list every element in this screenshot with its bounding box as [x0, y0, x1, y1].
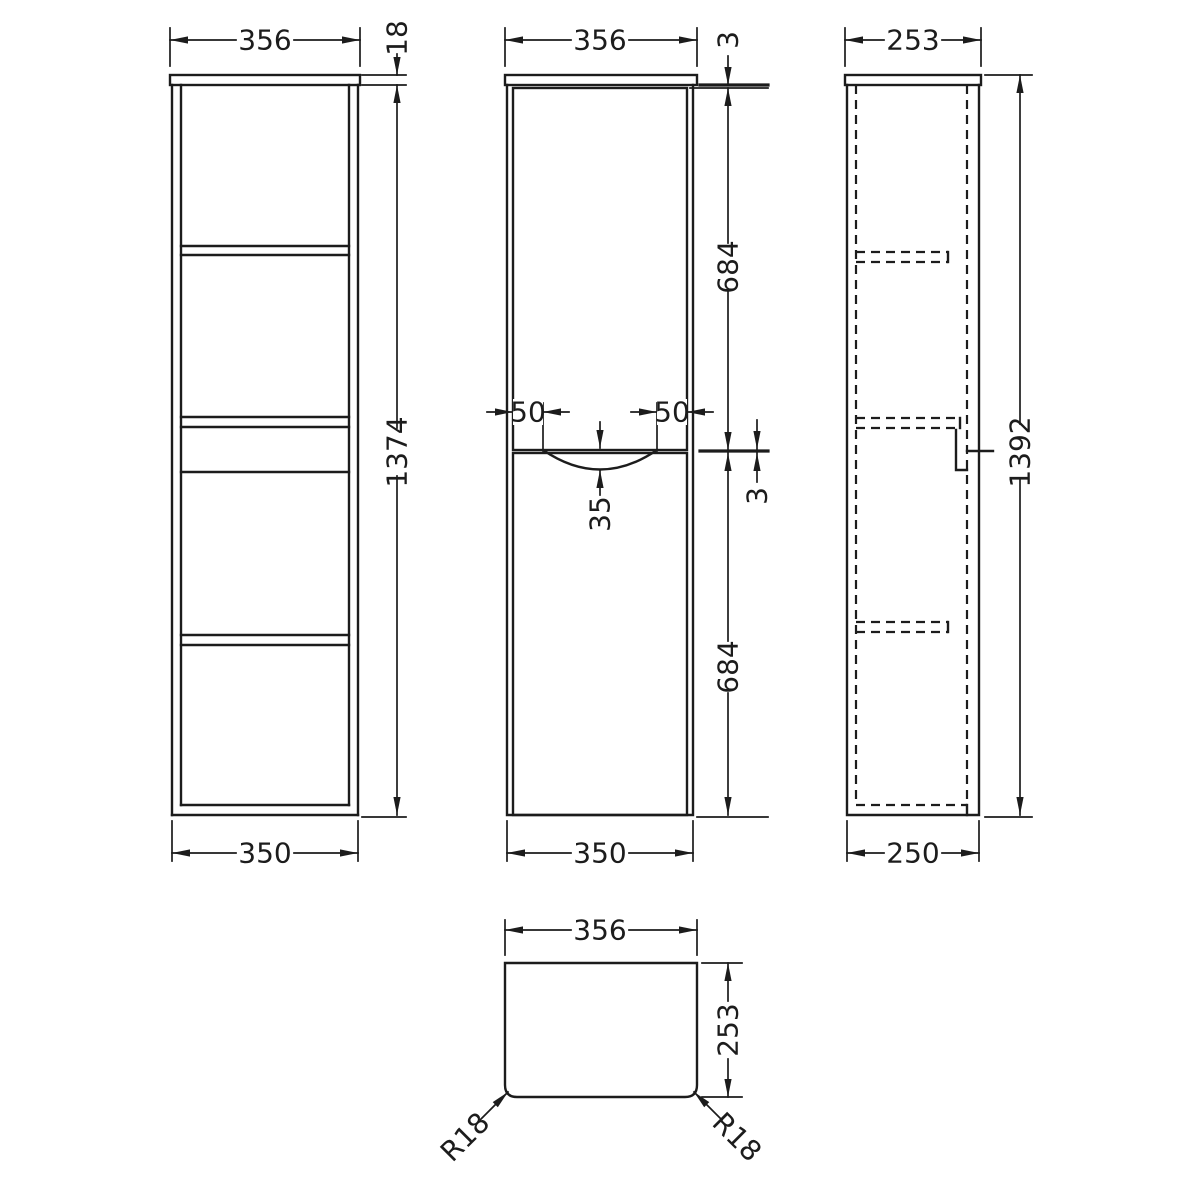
plan-view: 356 253 R18 R18 [434, 914, 768, 1169]
dim-label-overall-height: 1392 [1004, 416, 1037, 487]
top-panel [505, 75, 697, 85]
hidden-panel-lines [856, 85, 967, 805]
front-view-carcass: 356 18 1374 350 [170, 20, 414, 869]
dim-label-handle-depth: 35 [584, 496, 617, 532]
dim-label-doors-width-top: 356 [573, 24, 626, 57]
dim-label-carcass-height: 1374 [381, 416, 414, 487]
cabinet-orthographic-drawing: 356 18 1374 350 356 3 684 [0, 0, 1200, 1200]
hidden-shelf-bottom [856, 622, 948, 632]
side-view: 253 1392 250 [845, 24, 1037, 870]
side-walls [172, 85, 358, 815]
dim-label-top-thickness: 18 [381, 20, 414, 56]
dim-label-radius-right: R18 [706, 1106, 768, 1168]
handle-recess-profile [956, 430, 967, 470]
dim-label-carcass-width-bottom: 350 [238, 837, 291, 870]
dim-label-plan-width: 356 [573, 914, 626, 947]
top-panel [845, 75, 981, 85]
dim-label-carcass-width-top: 356 [238, 24, 291, 57]
outer-edges [847, 85, 979, 815]
dim-label-top-gap: 3 [712, 31, 745, 49]
top-panel [170, 75, 360, 85]
dim-label-upper-door-height: 684 [712, 240, 745, 293]
technical-drawing-canvas: 356 18 1374 350 356 3 684 [0, 0, 1200, 1200]
hidden-shelf-top [856, 252, 948, 262]
front-view-doors: 356 3 684 3 684 50 50 [487, 24, 774, 870]
dim-label-plan-depth: 253 [712, 1003, 745, 1056]
shelves [181, 246, 349, 645]
dim-label-lower-door-height: 684 [712, 640, 745, 693]
dim-label-door-gap: 3 [741, 487, 774, 505]
dim-label-depth-bottom: 250 [886, 837, 939, 870]
dim-ext-lines [362, 75, 406, 85]
bottom-panel [172, 805, 358, 815]
hidden-shelf-mid [856, 418, 960, 428]
radius-leader-left [480, 1092, 508, 1120]
dim-label-handle-inset-left: 50 [510, 396, 546, 429]
dim-label-doors-width-bottom: 350 [573, 837, 626, 870]
dim-label-depth-top: 253 [886, 24, 939, 57]
plan-outline [505, 963, 697, 1097]
dim-label-radius-left: R18 [434, 1106, 496, 1168]
dim-label-handle-inset-right: 50 [654, 396, 690, 429]
